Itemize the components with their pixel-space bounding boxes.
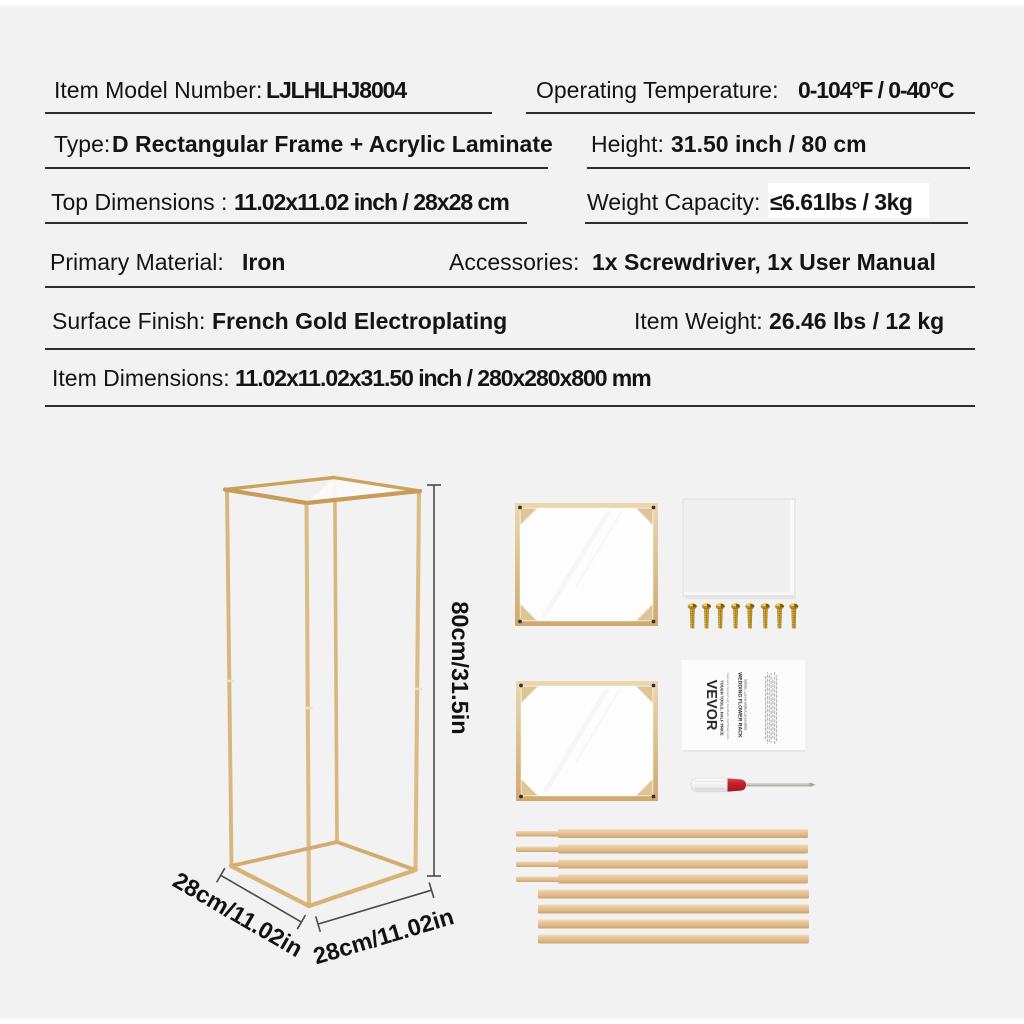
svg-text:28cm/11.02in: 28cm/11.02in <box>169 867 308 962</box>
svg-text:80cm/31.5in: 80cm/31.5in <box>447 601 473 734</box>
svg-text:28cm/11.02in: 28cm/11.02in <box>310 903 456 969</box>
svg-text:WEDDING FLOWER RACK: WEDDING FLOWER RACK <box>737 672 743 738</box>
svg-text:VEVOR: VEVOR <box>703 680 719 731</box>
svg-text:MODEL: LJLHLHJ8001/LJLHLHJ8001: MODEL: LJLHLHJ8001/LJLHLHJ8001 <box>744 679 748 731</box>
svg-text:TOUGH TOOLS, HALF PRICE: TOUGH TOOLS, HALF PRICE <box>719 680 724 736</box>
svg-text:Hardware Support and Feedback,: Hardware Support and Feedback, Certifica… <box>726 673 730 740</box>
